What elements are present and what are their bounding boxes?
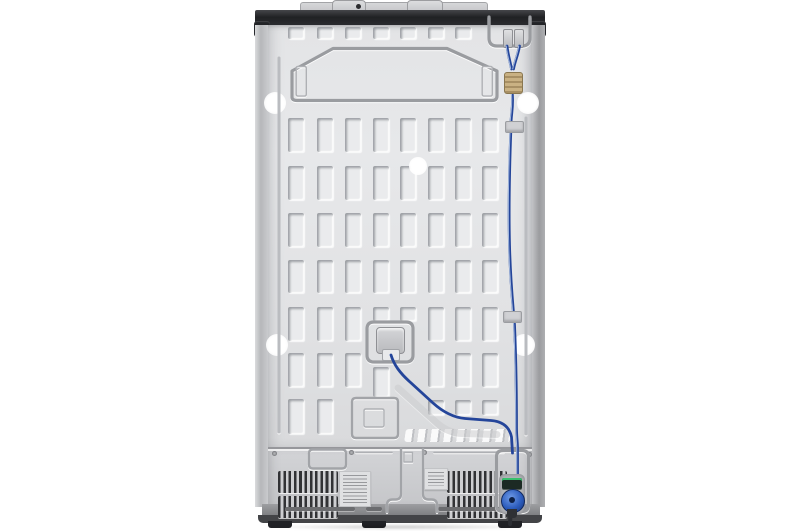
panel-slot [288,166,304,200]
shipping-hole [266,334,288,356]
vent-grille-right [447,471,507,519]
panel-slot [288,399,304,434]
shipping-hole [409,157,427,175]
panel-slot [373,27,389,39]
vent-slats [278,471,338,493]
water-inlet-nozzle [507,509,517,518]
panel-slot [288,118,304,152]
panel-slot [317,166,333,200]
panel-slot [428,260,444,293]
panel-slot [345,27,361,39]
panel-slot [428,166,444,200]
panel-slot [482,307,498,341]
cover-screw-icon [527,452,532,457]
base-groove [438,507,508,511]
base-groove [366,507,382,511]
shipping-hole [513,334,535,356]
panel-slot [317,307,333,341]
panel-slot [455,260,471,293]
panel-slot [455,213,471,247]
panel-slot [288,27,304,39]
panel-slot [345,307,361,341]
brass-coupler [504,72,523,94]
panel-slot [317,399,333,434]
embossed-stamp [404,429,512,442]
panel-slot [428,118,444,152]
panel-slot [288,307,304,341]
rating-label-right [424,468,448,490]
cover-screw-icon [422,450,427,455]
tube-clip-lower [503,311,522,323]
shipping-hole [517,92,539,114]
panel-slot [482,213,498,247]
panel-slot [428,307,444,341]
panel-slot [345,118,361,152]
panel-slots [0,0,800,531]
base-groove [285,507,355,511]
panel-slot [373,118,389,152]
panel-slot [373,213,389,247]
top-fitting-port [503,29,513,48]
panel-slot [455,27,471,39]
panel-slot [317,213,333,247]
panel-slot [428,353,444,387]
panel-slot [482,260,498,293]
panel-slot [373,260,389,293]
vent-grille-left [278,471,338,519]
valve-hub [509,497,515,503]
panel-slot [400,118,416,152]
panel-slot [288,213,304,247]
tube-clip-upper [505,121,524,133]
mid-valve-connector [382,349,400,361]
panel-slot [373,367,389,397]
panel-slot [455,166,471,200]
panel-slot [345,353,361,387]
panel-slot [400,213,416,247]
panel-slot [428,213,444,247]
vent-slats [447,471,507,493]
panel-slot [373,166,389,200]
panel-slot [482,166,498,200]
label-fine-print [343,475,367,503]
panel-slot [455,118,471,152]
panel-slot [288,353,304,387]
panel-slot [345,213,361,247]
panel-slot [428,400,444,415]
panel-slot [345,260,361,293]
panel-slot [400,27,416,39]
panel-slot [455,400,471,415]
top-fitting-port [514,29,524,48]
panel-slot [317,260,333,293]
panel-slot [482,400,498,415]
cover-screw-icon [272,451,277,456]
label-fine-print [428,472,444,486]
product-photo-stage [0,0,800,531]
panel-slot [317,27,333,39]
panel-slot [482,353,498,387]
panel-slot [400,260,416,293]
panel-slot [373,307,389,321]
shipping-hole [264,92,286,114]
panel-slot [400,307,416,321]
panel-slot [455,307,471,341]
panel-slot [345,166,361,200]
panel-slot [455,353,471,387]
panel-slot [288,260,304,293]
panel-slot [428,27,444,39]
panel-slot [317,353,333,387]
cover-screw-icon [349,450,354,455]
panel-slot [482,118,498,152]
panel-slot [317,118,333,152]
rating-label-left [339,471,371,507]
